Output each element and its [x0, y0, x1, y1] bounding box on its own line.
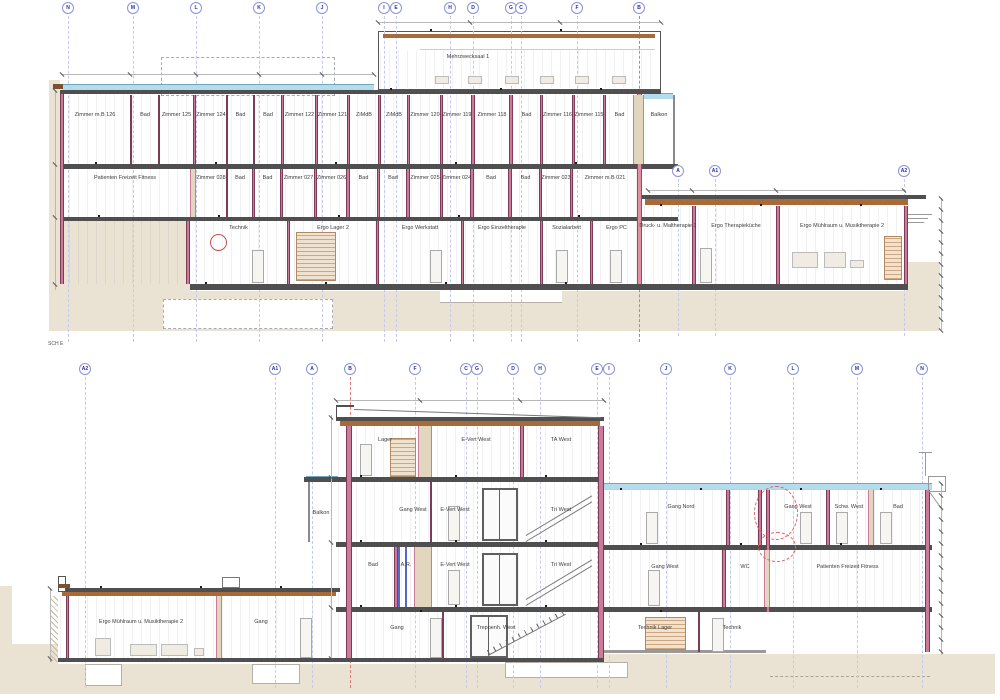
- wall-uw: [776, 206, 780, 284]
- furniture-wing-0: [792, 252, 818, 268]
- room-label-uf2: Zimmer 115: [575, 113, 604, 120]
- room-label-uf2: Bad: [522, 113, 532, 120]
- wall-uw: [692, 206, 696, 284]
- door-upper-ground-1: [430, 250, 442, 283]
- room-label-uf2: Bad: [263, 113, 273, 120]
- furniture-penthouse-5: [612, 76, 626, 84]
- elevation-marker: [455, 540, 457, 542]
- elevation-marker: [215, 162, 217, 164]
- wall-lw2: [868, 490, 874, 545]
- wall-uf2: [253, 95, 255, 164]
- elevation-marker: [430, 29, 432, 31]
- room-label-uf2: ZiMdB: [356, 113, 372, 120]
- grid-bubble-low-M: M: [851, 363, 863, 375]
- grid-bubble-low-F: F: [409, 363, 421, 375]
- grid-line-low-L: [793, 377, 794, 688]
- grid-line-F: [577, 16, 578, 342]
- room-label-uf2: Zimmer 124: [196, 113, 225, 120]
- grid-bubble-low-A: A: [306, 363, 318, 375]
- elevation-marker: [578, 215, 580, 217]
- elevation-marker: [325, 282, 327, 284]
- room-label-uf1: Zimmer m.B 021: [585, 176, 626, 183]
- wall-lw2: [826, 490, 830, 545]
- section-label: SCH E: [48, 341, 63, 348]
- wall-lt3: [418, 426, 432, 477]
- wall-ug: [376, 221, 379, 284]
- wall-uf2: [471, 95, 475, 164]
- brown-eave-upper-left: [53, 84, 63, 89]
- penthouse-ceiling-line: [420, 49, 655, 50]
- wall-uf2: [281, 95, 284, 164]
- grid-bubble-low-B: B: [344, 363, 356, 375]
- entrance-glazing-f1: [482, 553, 518, 606]
- elevation-marker: [338, 215, 340, 217]
- grid-bubble-A1: A1: [709, 165, 721, 177]
- wall-uf1: [252, 169, 255, 217]
- furniture-wing-1: [824, 252, 846, 268]
- section-drawing-canvas: NMLKJIEHDGCFBAA1A2A2A1ABFCGDHEIJKLMNZimm…: [0, 0, 1000, 700]
- texture-upper-wing: [644, 206, 904, 284]
- furniture-wing-2: [850, 260, 864, 268]
- tower-ext-wall-right: [598, 426, 604, 658]
- room-label-uf2: Bad: [140, 113, 150, 120]
- grid-bubble-K: K: [253, 2, 265, 14]
- door-lower-6: [648, 570, 660, 606]
- elevation-marker: [390, 88, 392, 90]
- grid-bubble-H: H: [444, 2, 456, 14]
- left-wing-ext-wall: [66, 596, 69, 658]
- wall-uf1: [190, 169, 196, 217]
- elevation-marker: [700, 488, 702, 490]
- wall-uf2: [407, 95, 410, 164]
- grid-bubble-C: C: [515, 2, 527, 14]
- room-label-uf1: Bad: [486, 176, 496, 183]
- elevation-marker: [218, 215, 220, 217]
- wall-uf2: [572, 95, 575, 164]
- room-label-ug: Ergo PC: [606, 226, 627, 233]
- upper-ground-wall-left: [186, 221, 190, 284]
- grid-bubble-low-H: H: [534, 363, 546, 375]
- grid-bubble-E: E: [390, 2, 402, 14]
- skylight-box: [222, 577, 240, 588]
- room-label-lt3: E-Vert West: [461, 438, 490, 445]
- grid-bubble-low-I: I: [603, 363, 615, 375]
- room-label-uf2: Bad: [236, 113, 246, 120]
- door-upper-ground-2: [556, 250, 568, 283]
- room-label-balkon: Balkon: [313, 511, 330, 518]
- room-label-uf1: Bad: [263, 176, 273, 183]
- room-label-uf1: Zimmer 028: [196, 176, 225, 183]
- neighbor-marker: [928, 476, 946, 492]
- room-label-ug: Ergo Werkstatt: [402, 226, 438, 233]
- basement-notch: [440, 291, 562, 303]
- elevation-marker: [575, 162, 577, 164]
- door-lower-5: [880, 512, 892, 544]
- elevation-marker: [455, 605, 457, 607]
- elevation-marker: [880, 488, 882, 490]
- elevation-marker: [600, 88, 602, 90]
- room-label-lt2: Tri West: [551, 508, 571, 515]
- grid-bubble-F: F: [571, 2, 583, 14]
- grid-bubble-N: N: [62, 2, 74, 14]
- foundation-dashed-line: [770, 676, 930, 677]
- upper-slab-1: [60, 217, 678, 221]
- elevation-marker: [545, 540, 547, 542]
- room-label-lw0: Technik Lager: [638, 626, 672, 633]
- balcony-rail-lower: [308, 482, 310, 542]
- elevation-marker: [860, 204, 862, 206]
- wall-lt3: [520, 426, 524, 477]
- upper-roof-slab: [60, 90, 661, 94]
- upper-ground-slab: [190, 284, 908, 290]
- door-lower-10: [448, 570, 460, 605]
- technik-circle: [210, 234, 227, 251]
- room-label-ug: Sozialarbeit: [552, 226, 581, 233]
- elevation-marker: [545, 475, 547, 477]
- grid-bubble-low-L: L: [787, 363, 799, 375]
- grid-line-low-N: [922, 377, 923, 688]
- tower-slab-3: [336, 477, 604, 482]
- entrance-glazing-f2: [482, 488, 518, 541]
- room-label-lt3: Lager: [378, 438, 392, 445]
- room-label-uw: Druck- u. Maltherapie 1: [639, 224, 696, 231]
- room-label-lt1: Bad: [368, 563, 378, 570]
- wall-lt0: [442, 612, 444, 658]
- furniture-penthouse-2: [505, 76, 519, 84]
- room-label-ug: Ergo Lager 2: [317, 226, 349, 233]
- terrace-step-3: [908, 222, 924, 223]
- room-label-uw: Ergo Therapieküche: [711, 224, 760, 231]
- terrace-step-2: [908, 218, 928, 219]
- elevation-marker: [98, 215, 100, 217]
- room-label-lt1: E-Vert West: [440, 563, 469, 570]
- elevation-marker: [640, 543, 642, 545]
- grid-line-low-M: [857, 377, 858, 688]
- wall-uf2: [378, 95, 381, 164]
- room-label-uf2: Zimmer 116: [543, 113, 572, 120]
- upper-balcony-rail: [673, 95, 675, 164]
- grid-bubble-low-J: J: [660, 363, 672, 375]
- earth-right-bank: [906, 262, 940, 331]
- room-label-penthouse: Mehrzwecksaal 1: [447, 55, 490, 62]
- door-lower-3: [800, 512, 812, 544]
- wall-ug: [590, 221, 593, 284]
- furniture-penthouse-3: [540, 76, 554, 84]
- mullion-f1: [499, 555, 500, 604]
- furniture-left-wing-1: [130, 644, 157, 656]
- right-wing-ext-wall: [925, 490, 930, 652]
- stair-hatch-wing: [884, 236, 902, 280]
- door-lower-0: [300, 618, 312, 658]
- elevation-marker: [740, 543, 742, 545]
- dim-tower-left: [331, 415, 332, 658]
- wall-uf2: [347, 95, 350, 164]
- grid-line-low-A: [312, 377, 313, 688]
- room-label-lt2: Gang West: [399, 508, 426, 515]
- elevation-marker: [335, 162, 337, 164]
- grid-bubble-A: A: [672, 165, 684, 177]
- elevation-marker: [560, 29, 562, 31]
- room-label-lt1: Tri West: [551, 563, 571, 570]
- retaining-wall-hatch: [50, 596, 58, 662]
- door-upper-ground-0: [252, 250, 264, 283]
- elevation-marker: [100, 586, 102, 588]
- wall-uf2: [603, 95, 606, 164]
- elevation-marker: [840, 543, 842, 545]
- door-lower-1: [430, 618, 442, 658]
- room-label-lw2: Bad: [893, 505, 903, 512]
- grid-bubble-I: I: [378, 2, 390, 14]
- elevation-marker: [280, 586, 282, 588]
- furniture-left-wing-0: [95, 638, 111, 656]
- wall-lw0: [698, 612, 700, 652]
- wall-uf2: [226, 95, 228, 164]
- grid-bubble-D: D: [467, 2, 479, 14]
- tower-roof-band: [340, 421, 600, 426]
- furniture-penthouse-0: [435, 76, 449, 84]
- grid-bubble-low-K: K: [724, 363, 736, 375]
- room-label-uf2: ZiMdB: [386, 113, 402, 120]
- elevation-marker: [360, 540, 362, 542]
- elevation-marker: [800, 488, 802, 490]
- wall-lw1: [722, 550, 726, 607]
- wall-lt1: [414, 547, 432, 607]
- elevation-marker: [200, 586, 202, 588]
- grid-line-N: [68, 16, 69, 342]
- wall-uf2: [315, 95, 318, 164]
- room-label-lt0: Treppenh. West: [477, 626, 516, 633]
- foundation-block-1: [85, 664, 122, 686]
- texture-upper-main: [60, 94, 640, 284]
- technik-lager-hatch: [645, 617, 686, 650]
- room-label-lw1: Gang West: [651, 565, 678, 572]
- dim-tower-top: [336, 400, 604, 401]
- room-label-uf1: Bad: [235, 176, 245, 183]
- grid-bubble-L: L: [190, 2, 202, 14]
- earth-low-right-step: [602, 654, 995, 664]
- wall-ug: [540, 221, 543, 284]
- upper-slab-2: [60, 164, 678, 169]
- grid-bubble-low-N: N: [916, 363, 928, 375]
- grid-line-I: [384, 16, 385, 342]
- room-label-lw2: Schw. West: [835, 505, 864, 512]
- room-label-uf1: Bad: [359, 176, 369, 183]
- room-label-lw0: Technik: [723, 626, 742, 633]
- elevation-marker: [360, 475, 362, 477]
- wall-uf1: [226, 169, 228, 217]
- wall-llw: [216, 596, 222, 658]
- room-label-ug: Ergo Einzeltherapie: [478, 226, 526, 233]
- furniture-penthouse-4: [575, 76, 589, 84]
- dim-upper-left: [55, 90, 56, 290]
- wall-lt2: [430, 482, 432, 542]
- wall-uf2: [130, 95, 132, 164]
- elevation-marker: [455, 475, 457, 477]
- elevation-marker: [660, 610, 662, 612]
- wall-uf1: [377, 169, 380, 217]
- wing-roof-band: [645, 199, 908, 205]
- room-label-lw1: Patienten Freizeit Fitness: [816, 565, 878, 572]
- wall-uf2: [440, 95, 443, 164]
- room-label-uf2: Balkon: [651, 113, 668, 120]
- brown-eave-lower-left: [58, 584, 70, 588]
- room-label-uf2: Zimmer 118: [478, 113, 507, 120]
- grid-bubble-low-A2: A2: [79, 363, 91, 375]
- room-label-uf2: Bad: [615, 113, 625, 120]
- wall-uf2: [633, 95, 644, 164]
- door-upper-ground-3: [610, 250, 622, 283]
- grid-bubble-low-D: D: [507, 363, 519, 375]
- grid-bubble-B: B: [633, 2, 645, 14]
- tower-parapet: [336, 405, 354, 418]
- elevation-marker: [458, 215, 460, 217]
- door-lower-2: [646, 512, 658, 544]
- grid-bubble-low-A1: A1: [269, 363, 281, 375]
- tower-slab-2: [336, 542, 604, 547]
- dim-penthouse: [378, 22, 661, 23]
- penthouse-roof-band: [383, 34, 655, 38]
- door-lower-8: [360, 444, 372, 476]
- room-label-lt3: TA West: [551, 438, 571, 445]
- room-label-lt1: A.R.: [401, 563, 412, 570]
- grid-line-low-K: [730, 377, 731, 688]
- wall-uf2: [193, 95, 196, 164]
- elevation-marker: [445, 282, 447, 284]
- room-label-uf1: Bad: [388, 176, 398, 183]
- room-label-uf2: Zimmer 120: [410, 113, 439, 120]
- room-label-uf2: Zimmer m.B 126: [75, 113, 116, 120]
- wall-junction-a: [726, 490, 730, 545]
- elevation-marker: [660, 204, 662, 206]
- elevation-marker: [620, 488, 622, 490]
- room-label-lw2: Gang Nord: [668, 505, 695, 512]
- left-wing-roof-band: [62, 592, 336, 596]
- elevation-marker: [455, 162, 457, 164]
- elevation-marker: [420, 610, 422, 612]
- elevation-marker: [500, 88, 502, 90]
- elevator-line-1: [398, 547, 400, 607]
- elevation-marker: [360, 605, 362, 607]
- wall-uf2: [509, 95, 513, 164]
- elevation-marker: [760, 204, 762, 206]
- wall-uf1: [346, 169, 350, 217]
- furniture-left-wing-2: [161, 644, 188, 656]
- dim-lower-left: [50, 588, 51, 660]
- room-label-uw: Ergo Mühlraum u. Musiktherapie 2: [800, 224, 884, 231]
- terrace-step-1: [908, 214, 932, 215]
- elevation-marker: [95, 162, 97, 164]
- door-wing: [700, 248, 712, 283]
- lower-right-ground-line: [604, 650, 766, 653]
- mullion-f2: [499, 490, 500, 539]
- room-label-uf1: Zimmer 027: [284, 176, 313, 183]
- wall-uf2: [158, 95, 160, 164]
- tower-ext-wall-left: [346, 426, 352, 658]
- room-label-lw1: WC: [740, 565, 749, 572]
- wall-uf1: [508, 169, 512, 217]
- elevation-marker: [545, 605, 547, 607]
- stair-hatch-ergo-lager: [296, 232, 336, 281]
- room-label-uf1: Bad: [521, 176, 531, 183]
- room-label-uf2: Zimmer 119: [443, 113, 472, 120]
- stair-hatch-tower: [390, 438, 416, 477]
- wall-uf2: [540, 95, 543, 164]
- grid-line-K: [259, 16, 260, 342]
- basement-dashed-box: [163, 299, 333, 329]
- room-label-llw: Ergo Mühlraum u. Musiktherapie 2: [99, 620, 183, 627]
- room-label-uf1: Zimmer 023: [541, 176, 570, 183]
- dim-upper-roof: [62, 74, 374, 75]
- grid-bubble-low-E: E: [591, 363, 603, 375]
- door-lower-4: [836, 512, 848, 544]
- room-label-uf1: Zimmer 024: [442, 176, 471, 183]
- furniture-penthouse-1: [468, 76, 482, 84]
- room-label-uf2: Zimmer 122: [285, 113, 314, 120]
- door-lower-7: [712, 618, 724, 652]
- earth-low-bottom: [12, 664, 995, 694]
- survey-crossbar: [919, 452, 932, 453]
- survey-pole: [925, 452, 926, 476]
- room-label-lt2: E-Vert West: [440, 508, 469, 515]
- grid-bubble-J: J: [316, 2, 328, 14]
- foundation-block-2: [252, 664, 300, 684]
- elevation-marker: [205, 282, 207, 284]
- grid-line-low-A1: [275, 377, 276, 688]
- room-label-ug: Technik: [229, 226, 248, 233]
- room-label-uf1: Zimmer 026: [317, 176, 346, 183]
- wall-uf1: [280, 169, 283, 217]
- elevator-line-2: [405, 547, 407, 607]
- room-label-uf2: Zimmer 121: [318, 113, 347, 120]
- upper-ext-wall-left: [60, 94, 64, 284]
- room-label-lt0: Gang: [390, 626, 403, 633]
- grid-bubble-low-G: G: [471, 363, 483, 375]
- elevation-marker: [565, 282, 567, 284]
- room-label-llw: Gang: [254, 620, 267, 627]
- grid-line-low-A2: [85, 377, 86, 688]
- room-label-uf2: Zimmer 125: [162, 113, 191, 120]
- room-label-uf1: Zimmer 025: [410, 176, 439, 183]
- grid-bubble-M: M: [127, 2, 139, 14]
- revision-cloud-2: [758, 532, 796, 562]
- furniture-left-wing-3: [194, 648, 204, 656]
- room-label-uf1: Patienten Freizeit Fitness: [94, 176, 156, 183]
- wall-ug: [461, 221, 464, 284]
- grid-line-low-I: [609, 377, 610, 688]
- wall-ug: [287, 221, 290, 284]
- grid-bubble-A2: A2: [898, 165, 910, 177]
